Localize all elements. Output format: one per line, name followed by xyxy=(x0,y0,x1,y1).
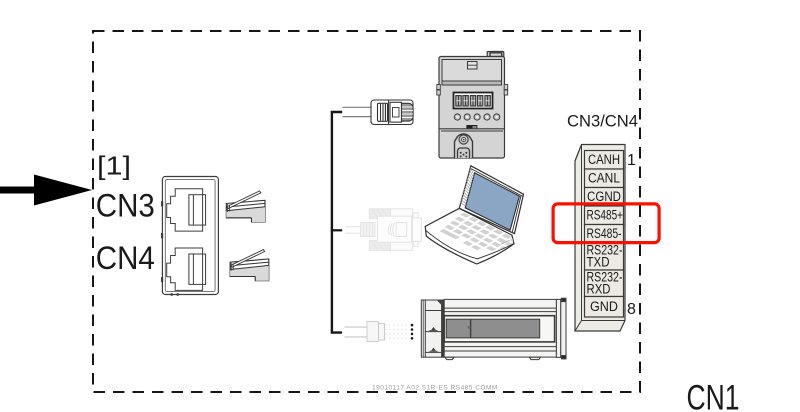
svg-text:1: 1 xyxy=(627,152,636,169)
svg-text:[1]: [1] xyxy=(97,150,131,180)
svg-text:RXD: RXD xyxy=(587,282,611,297)
svg-text:CGND: CGND xyxy=(587,189,621,204)
svg-text:TXD: TXD xyxy=(587,255,610,270)
svg-text:CN1: CN1 xyxy=(687,379,740,412)
svg-text:RS485+: RS485+ xyxy=(587,208,624,223)
svg-text:19010117 A02 S1R-ES RS485 C: 19010117 A02 S1R-ES RS485 COMM xyxy=(372,385,498,392)
svg-text:CN4: CN4 xyxy=(96,240,155,276)
svg-text:CN3/CN4: CN3/CN4 xyxy=(567,112,638,131)
svg-text:CANL: CANL xyxy=(588,171,620,186)
svg-text:8: 8 xyxy=(627,301,636,318)
svg-text:CANH: CANH xyxy=(588,152,620,167)
svg-text:RS485-: RS485- xyxy=(587,226,622,241)
svg-text:CN3: CN3 xyxy=(96,187,155,223)
svg-text:GND: GND xyxy=(590,299,618,314)
